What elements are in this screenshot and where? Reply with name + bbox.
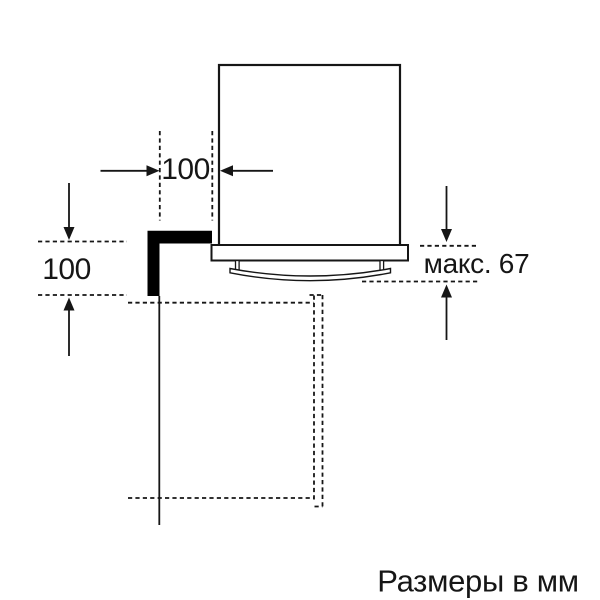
arrow-down-icon (441, 229, 452, 242)
control-panel (212, 245, 409, 261)
arrow-left-icon (220, 165, 233, 176)
arrow-down-icon (64, 227, 75, 240)
installation-diagram: 100 100 макс. 67 Размеры в мм (0, 0, 600, 600)
niche-outline (128, 295, 323, 507)
arrow-up-icon (441, 285, 452, 298)
dimension-label-left: 100 (42, 255, 91, 285)
dimension-label-top: 100 (161, 155, 210, 185)
diagram-linework (0, 0, 600, 600)
arrow-right-icon (147, 165, 160, 176)
wall-corner (148, 231, 213, 296)
appliance-body (219, 65, 400, 246)
units-caption: Размеры в мм (377, 566, 579, 597)
door-handle (230, 269, 391, 281)
arrow-up-icon (64, 298, 75, 311)
dimension-label-max-depth: макс. 67 (424, 250, 530, 278)
